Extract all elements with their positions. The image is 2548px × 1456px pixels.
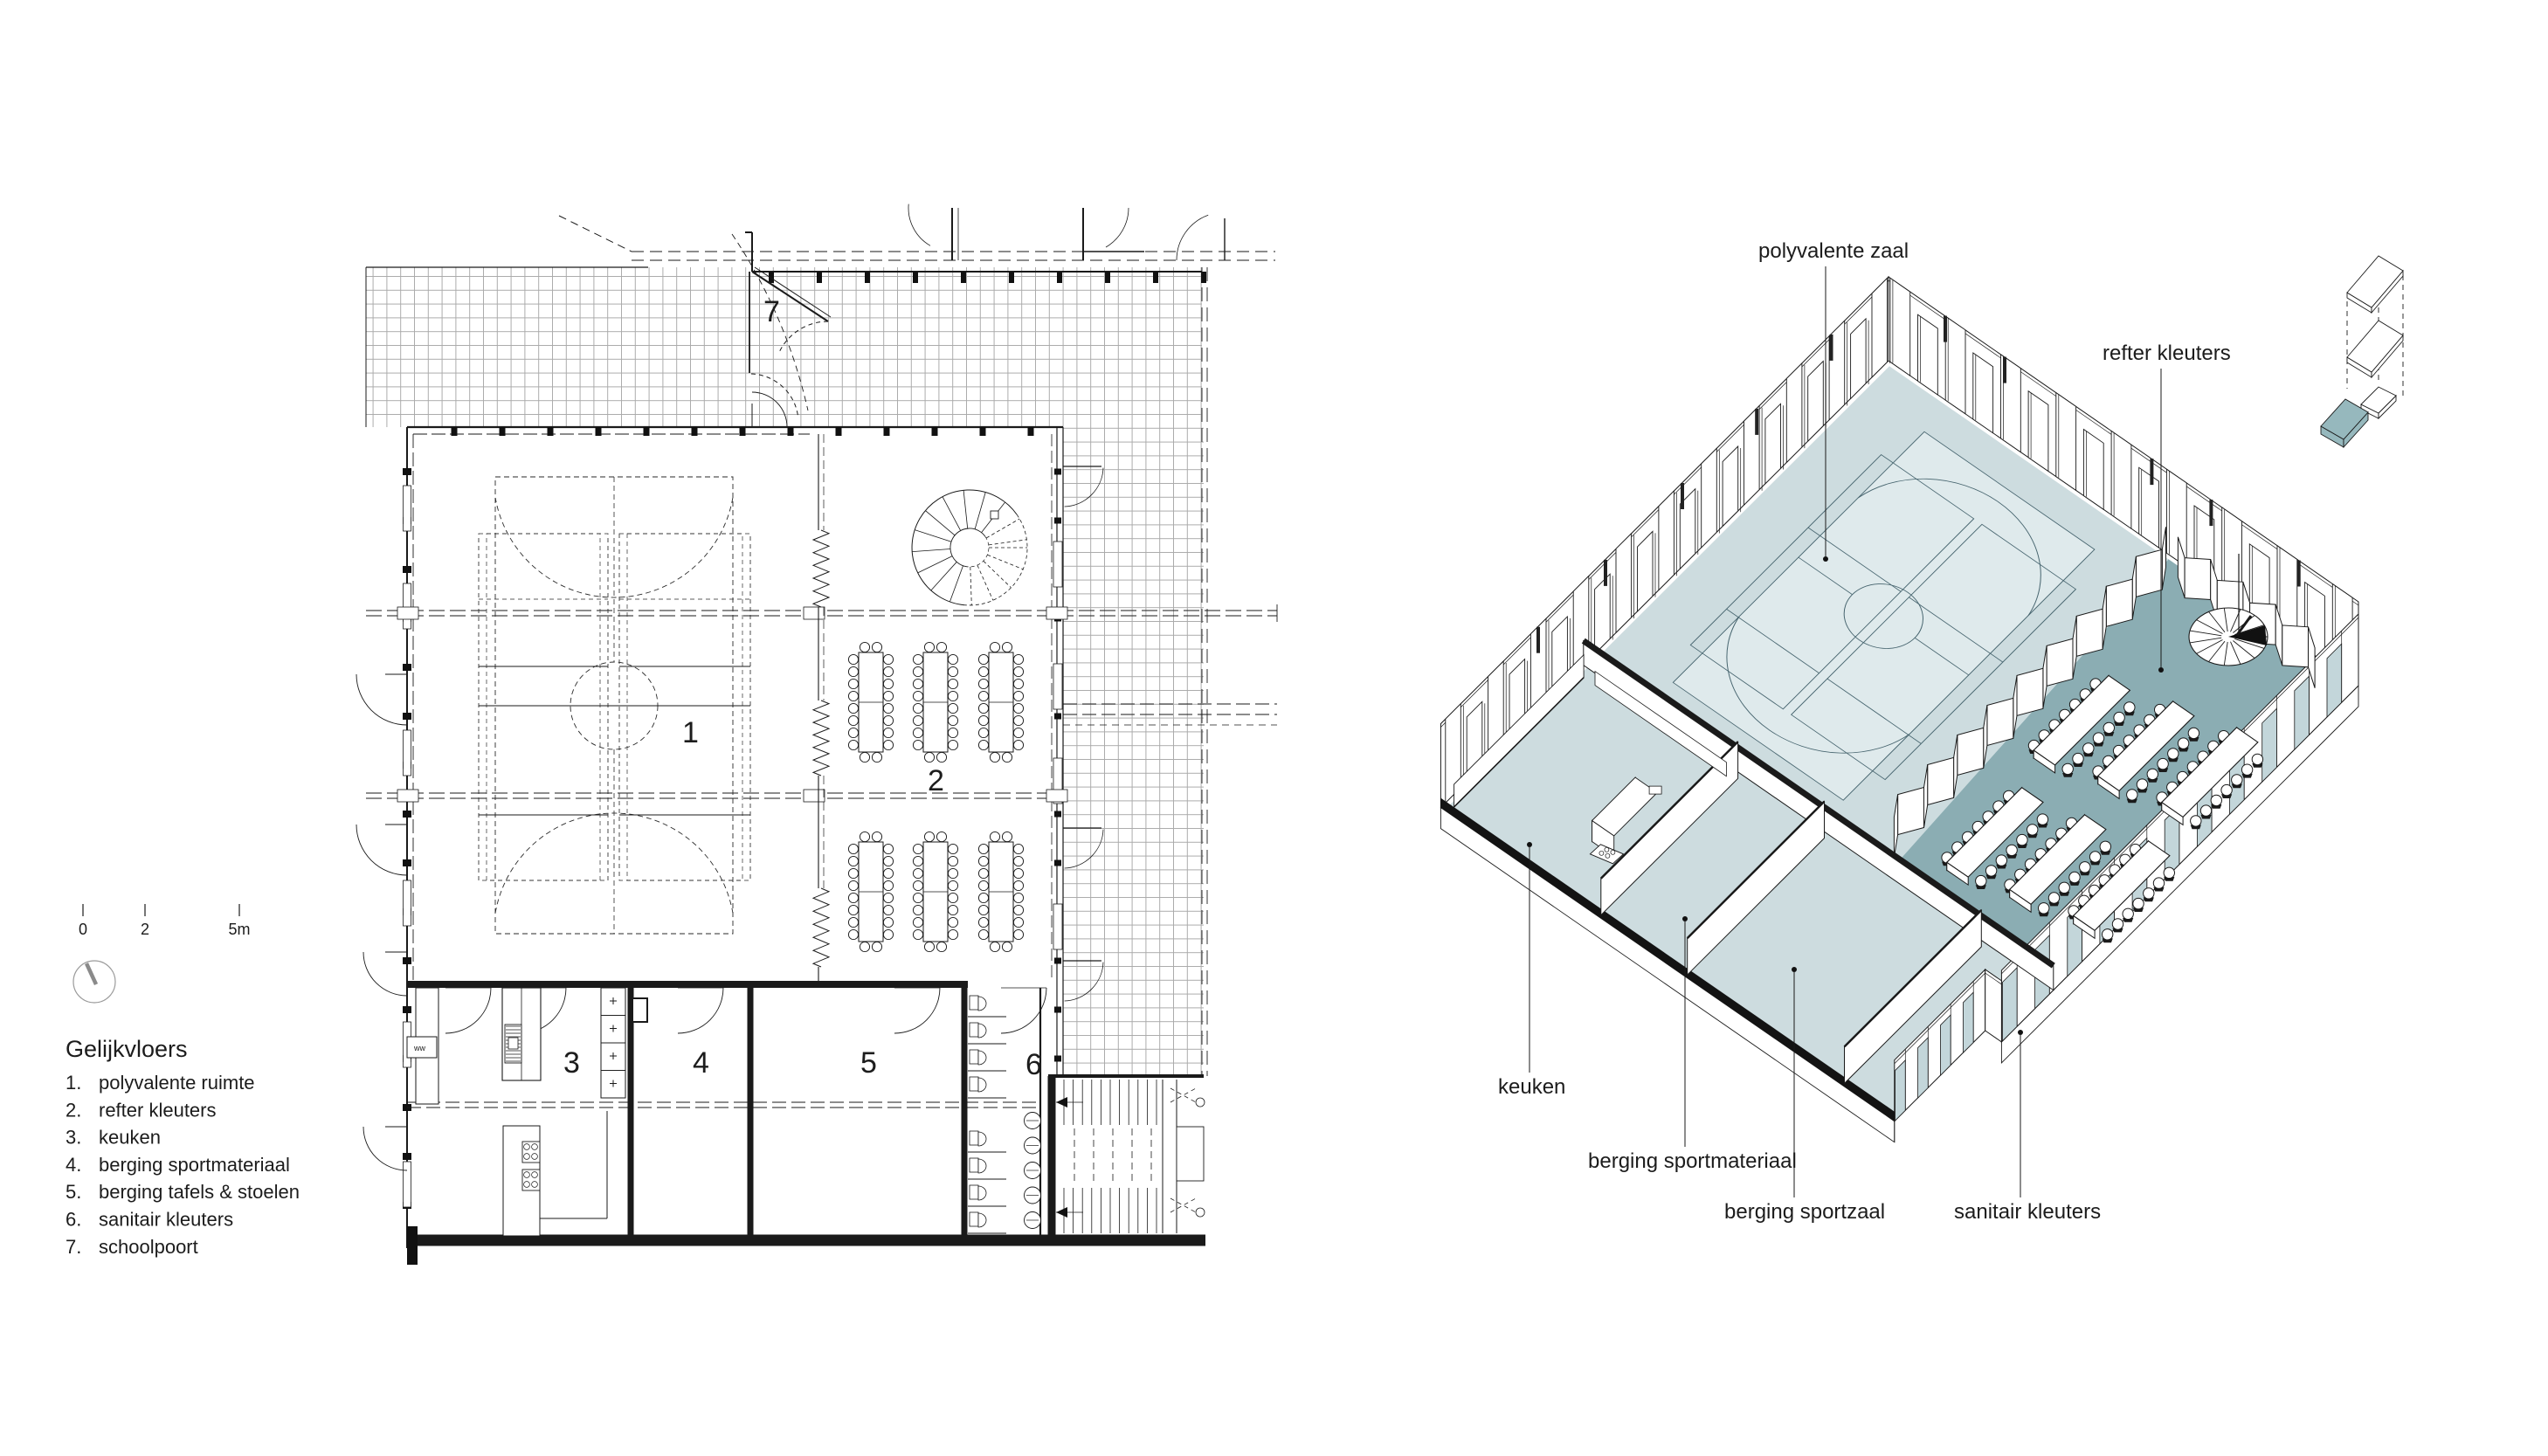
svg-text:1.: 1. <box>66 1072 81 1094</box>
svg-text:0: 0 <box>79 921 87 938</box>
svg-text:2.: 2. <box>66 1099 81 1121</box>
svg-text:Gelijkvloers: Gelijkvloers <box>66 1036 188 1062</box>
svg-text:keuken: keuken <box>99 1127 161 1149</box>
svg-text:ww: ww <box>413 1044 425 1052</box>
svg-text:berging sportmateriaal: berging sportmateriaal <box>99 1154 290 1176</box>
svg-text:7: 7 <box>763 295 780 328</box>
svg-text:5.: 5. <box>66 1181 81 1203</box>
svg-text:5m: 5m <box>228 921 250 938</box>
svg-text:berging sportmateriaal: berging sportmateriaal <box>1588 1149 1797 1173</box>
svg-text:4.: 4. <box>66 1154 81 1176</box>
svg-text:polyvalente zaal: polyvalente zaal <box>1758 239 1909 263</box>
svg-text:keuken: keuken <box>1498 1075 1565 1099</box>
svg-text:berging tafels & stoelen: berging tafels & stoelen <box>99 1181 300 1203</box>
svg-text:2: 2 <box>141 921 149 938</box>
svg-text:3: 3 <box>563 1046 580 1080</box>
svg-text:berging sportzaal: berging sportzaal <box>1724 1200 1885 1224</box>
svg-text:6.: 6. <box>66 1209 81 1231</box>
svg-text:schoolpoort: schoolpoort <box>99 1236 198 1258</box>
svg-text:4: 4 <box>693 1046 709 1080</box>
svg-text:3.: 3. <box>66 1127 81 1149</box>
svg-text:refter kleuters: refter kleuters <box>99 1099 217 1121</box>
svg-text:sanitair kleuters: sanitair kleuters <box>99 1209 233 1231</box>
svg-text:1: 1 <box>682 716 699 749</box>
svg-text:6: 6 <box>1025 1048 1042 1081</box>
svg-text:refter kleuters: refter kleuters <box>2103 342 2231 365</box>
svg-text:2: 2 <box>928 764 944 797</box>
svg-text:7.: 7. <box>66 1236 81 1258</box>
svg-text:polyvalente ruimte: polyvalente ruimte <box>99 1072 255 1094</box>
svg-text:sanitair kleuters: sanitair kleuters <box>1954 1200 2101 1224</box>
svg-text:5: 5 <box>860 1046 877 1080</box>
